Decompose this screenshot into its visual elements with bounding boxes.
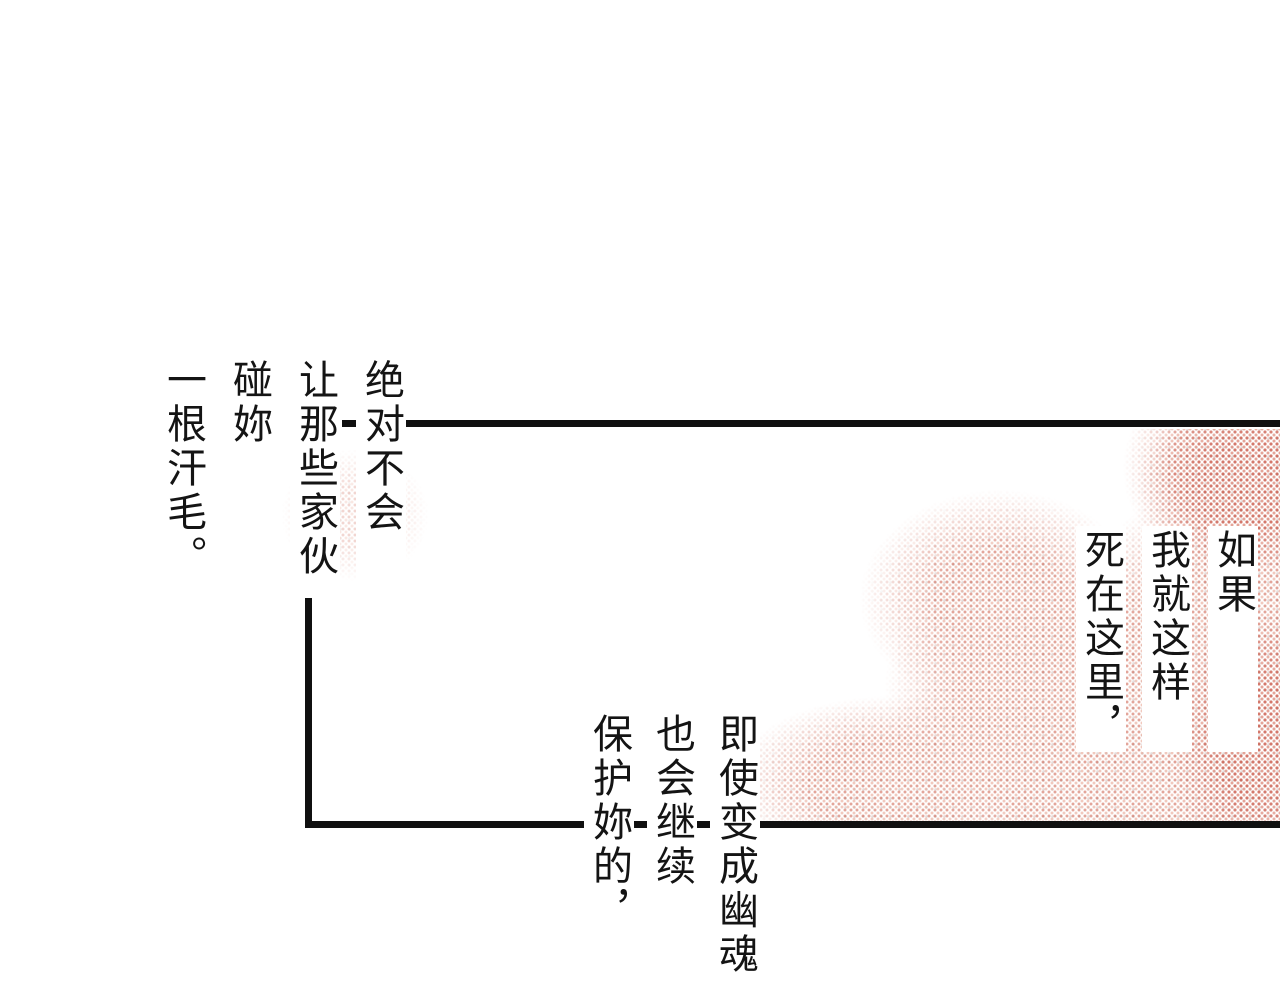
text-column: 如果 (1208, 526, 1258, 752)
text-column: 一根汗毛。 (158, 356, 208, 582)
text-column: 保护妳的， (584, 710, 634, 980)
comic-page: 绝对不会 让那些家伙 碰妳 一根汗毛。 如果 我就这样 死在这里， 即使变成幽魂… (0, 0, 1280, 1000)
text-column: 绝对不会 (356, 356, 406, 582)
panel-line-vertical (305, 598, 312, 828)
text-column: 我就这样 (1142, 526, 1192, 752)
text-column: 也会继续 (647, 710, 697, 980)
speech-text-bottom-center: 即使变成幽魂 也会继续 保护妳的， (584, 710, 760, 980)
panel-line-bottom (305, 821, 1280, 828)
text-column: 即使变成幽魂 (710, 710, 760, 980)
text-column: 碰妳 (224, 356, 274, 582)
speech-text-middle-right: 如果 我就这样 死在这里， (1076, 526, 1258, 752)
text-column: 死在这里， (1076, 526, 1126, 752)
text-column: 让那些家伙 (290, 356, 340, 582)
panel-line-top (342, 420, 1280, 427)
speech-text-top-left: 绝对不会 让那些家伙 碰妳 一根汗毛。 (158, 356, 406, 582)
